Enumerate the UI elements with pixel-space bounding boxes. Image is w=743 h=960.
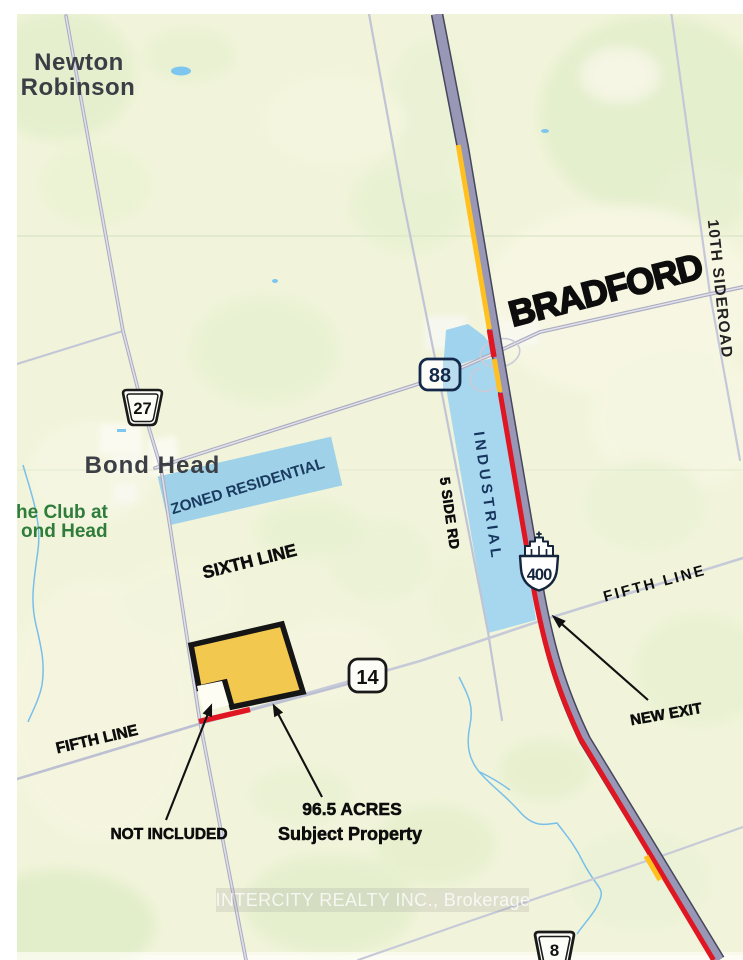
- svg-text:ond Head: ond Head: [21, 521, 108, 542]
- svg-text:Subject Property: Subject Property: [278, 824, 422, 844]
- svg-text:Bond Head: Bond Head: [85, 452, 221, 479]
- svg-text:96.5 ACRES: 96.5 ACRES: [302, 799, 402, 819]
- svg-text:88: 88: [429, 365, 451, 387]
- svg-text:27: 27: [133, 400, 151, 418]
- svg-text:14: 14: [356, 667, 379, 689]
- svg-text:INTERCITY REALTY INC., Brokera: INTERCITY REALTY INC., Brokerage: [216, 890, 531, 910]
- svg-text:400: 400: [527, 566, 552, 584]
- svg-text:NOT INCLUDED: NOT INCLUDED: [110, 826, 227, 843]
- svg-text:8: 8: [550, 941, 559, 960]
- svg-text:Robinson: Robinson: [21, 74, 136, 101]
- svg-text:he Club at: he Club at: [16, 502, 109, 523]
- svg-text:Newton: Newton: [34, 49, 124, 76]
